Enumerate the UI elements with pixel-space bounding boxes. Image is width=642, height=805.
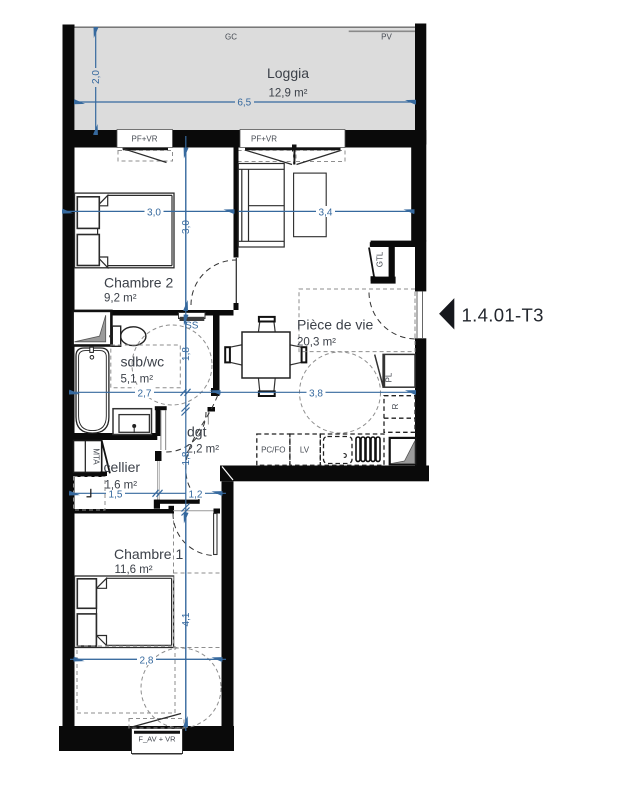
svg-text:GTL: GTL — [376, 251, 385, 267]
svg-text:2,0: 2,0 — [91, 70, 102, 84]
svg-text:SS: SS — [185, 321, 199, 332]
svg-text:1,8: 1,8 — [181, 347, 192, 361]
svg-text:9,2 m²: 9,2 m² — [104, 293, 137, 305]
svg-text:11,6 m²: 11,6 m² — [115, 564, 153, 576]
svg-text:12,9 m²: 12,9 m² — [269, 88, 308, 100]
svg-text:GC: GC — [225, 33, 237, 42]
svg-text:1,6 m²: 1,6 m² — [105, 480, 138, 492]
svg-text:sdb/wc: sdb/wc — [121, 354, 165, 370]
svg-text:PF+VR: PF+VR — [251, 135, 277, 144]
svg-text:cellier: cellier — [104, 459, 141, 475]
svg-text:Loggia: Loggia — [267, 65, 309, 81]
svg-text:3,4: 3,4 — [319, 207, 333, 218]
svg-text:2,8: 2,8 — [140, 655, 154, 666]
svg-text:3,0: 3,0 — [181, 220, 192, 234]
svg-text:PF+VR: PF+VR — [131, 135, 157, 144]
svg-text:PL: PL — [385, 372, 394, 382]
svg-text:Chambre 2: Chambre 2 — [104, 275, 173, 291]
svg-text:4,1: 4,1 — [181, 612, 192, 626]
svg-text:R: R — [391, 403, 400, 409]
svg-text:5,1 m²: 5,1 m² — [121, 374, 154, 386]
svg-text:2,2 m²: 2,2 m² — [187, 444, 220, 456]
svg-text:Pièce de vie: Pièce de vie — [297, 317, 373, 333]
svg-text:PC/FO: PC/FO — [261, 446, 285, 455]
svg-text:1.4.01-T3: 1.4.01-T3 — [462, 305, 544, 326]
svg-text:Chambre 1: Chambre 1 — [114, 546, 183, 562]
svg-text:6,5: 6,5 — [237, 97, 251, 108]
svg-text:3,0: 3,0 — [147, 207, 161, 218]
svg-text:dgt: dgt — [187, 424, 207, 440]
svg-text:F_AV + VR: F_AV + VR — [138, 735, 176, 744]
svg-text:3,8: 3,8 — [309, 388, 323, 399]
svg-text:PV: PV — [381, 33, 392, 42]
svg-text:LV: LV — [300, 446, 310, 455]
svg-text:1,2: 1,2 — [189, 489, 203, 500]
svg-text:MTA: MTA — [92, 448, 101, 465]
svg-text:2,7: 2,7 — [138, 388, 152, 399]
svg-text:20,3 m²: 20,3 m² — [297, 337, 336, 349]
